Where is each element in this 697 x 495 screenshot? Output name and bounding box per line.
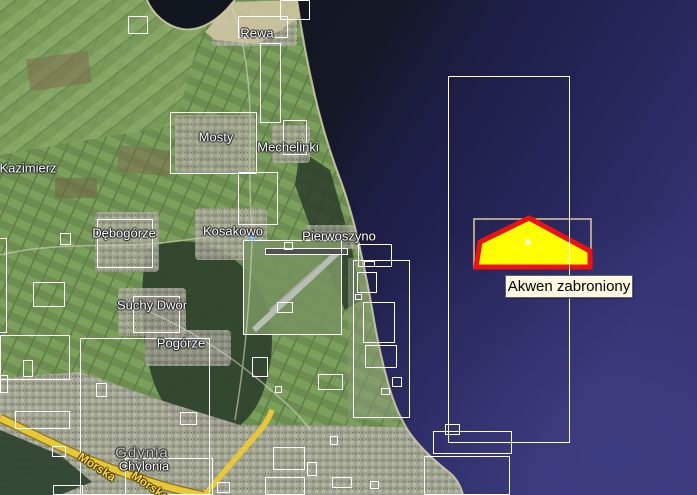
restricted-area-marker-icon[interactable]: ✦ bbox=[523, 237, 532, 250]
restricted-area-tooltip: Akwen zabroniony bbox=[505, 275, 633, 298]
airport-icon[interactable]: ✳ bbox=[247, 232, 256, 245]
map-viewport[interactable]: ✳ ✦ RewaMostyMechelinkiKazimierzDębogórz… bbox=[0, 0, 697, 495]
